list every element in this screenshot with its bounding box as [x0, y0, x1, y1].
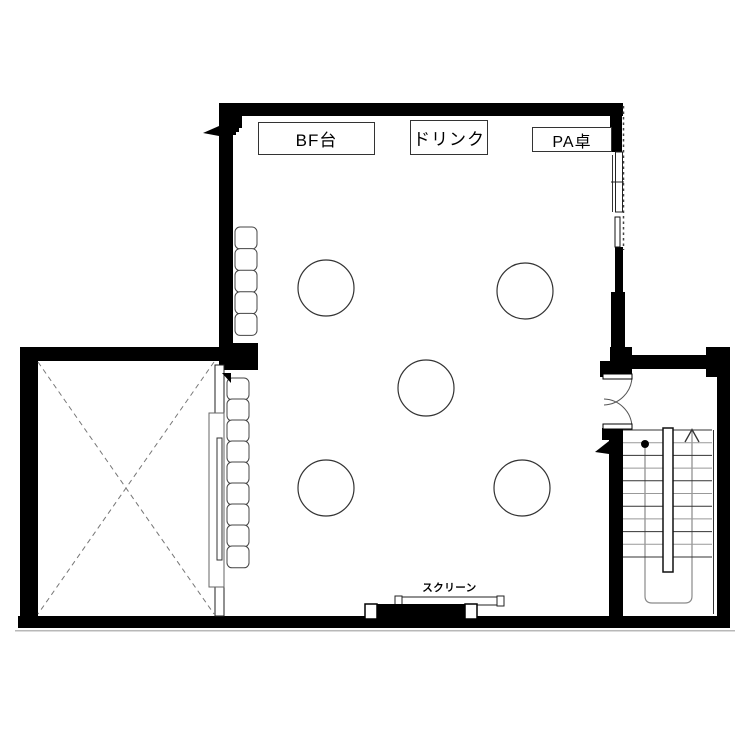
void-area	[38, 362, 214, 614]
stage-leg	[365, 604, 377, 619]
top-left-pilaster	[233, 103, 242, 128]
bench-seat	[227, 525, 249, 547]
right-outer-wall	[717, 347, 730, 628]
side-table-panel	[217, 438, 222, 560]
screen-bar	[396, 597, 503, 605]
left-wall-upper	[219, 103, 233, 370]
walking-line-start-dot	[641, 440, 649, 448]
bench-seat	[235, 249, 257, 271]
mid-left-wall-block	[219, 343, 258, 370]
pilaster-step	[233, 132, 236, 135]
floor-plan-drawing	[0, 0, 750, 750]
right-wall-mid	[615, 247, 623, 292]
staircase-overlay	[641, 428, 699, 572]
round-table	[497, 263, 553, 319]
stair-stringer	[663, 428, 673, 572]
bench-seat	[227, 462, 249, 484]
pa-desk-label-box: PA卓	[532, 127, 612, 152]
round-table	[298, 260, 354, 316]
screen-label: スクリーン	[396, 580, 503, 595]
wall-markers	[203, 126, 609, 454]
pa-desk-label: PA卓	[552, 128, 591, 152]
walls	[15, 103, 735, 632]
stage-area	[365, 596, 504, 619]
bench-seat	[227, 420, 249, 442]
pilaster-step	[233, 128, 239, 132]
top-wall	[219, 103, 623, 116]
drink-label: ドリンク	[413, 125, 485, 150]
left-outer-wall	[20, 347, 38, 628]
right-wall-mid-wide	[611, 292, 625, 347]
bench-seat	[227, 441, 249, 463]
round-table	[298, 460, 354, 516]
buffet-table-label-box: BF台	[258, 122, 375, 155]
bench-seat	[235, 227, 257, 249]
stage	[377, 604, 466, 618]
bench-seat	[227, 483, 249, 505]
door-leaf	[603, 424, 632, 429]
window-frame-lower	[615, 217, 620, 247]
stage-leg	[465, 604, 477, 619]
bench-seat	[235, 270, 257, 292]
floor-plan: BF台 ドリンク PA卓 スクリーン	[0, 0, 750, 750]
door-swing-arc	[604, 377, 632, 405]
double-door	[603, 374, 632, 429]
wall-marker	[595, 441, 609, 454]
bottom-wall-shadow	[15, 630, 735, 632]
stairhall-top-wall	[632, 355, 706, 369]
wall-marker	[203, 126, 219, 136]
round-table	[398, 360, 454, 416]
door-swing-arc	[604, 399, 632, 427]
door-leaf	[603, 374, 632, 379]
round-table	[494, 460, 550, 516]
stairhall-left-wall	[602, 428, 609, 440]
drink-label-box: ドリンク	[410, 120, 488, 155]
stairhall-left-wall	[609, 428, 623, 616]
round-tables	[298, 260, 553, 516]
screen-bar-cap	[497, 596, 504, 606]
bench-seat	[235, 313, 257, 335]
bench-seat	[227, 504, 249, 526]
bench-seat	[227, 546, 249, 568]
buffet-table-label: BF台	[296, 126, 338, 151]
bench-seat	[235, 292, 257, 314]
stairhall-left-block	[610, 347, 632, 361]
bench-seat	[227, 399, 249, 421]
staircase	[645, 430, 714, 614]
